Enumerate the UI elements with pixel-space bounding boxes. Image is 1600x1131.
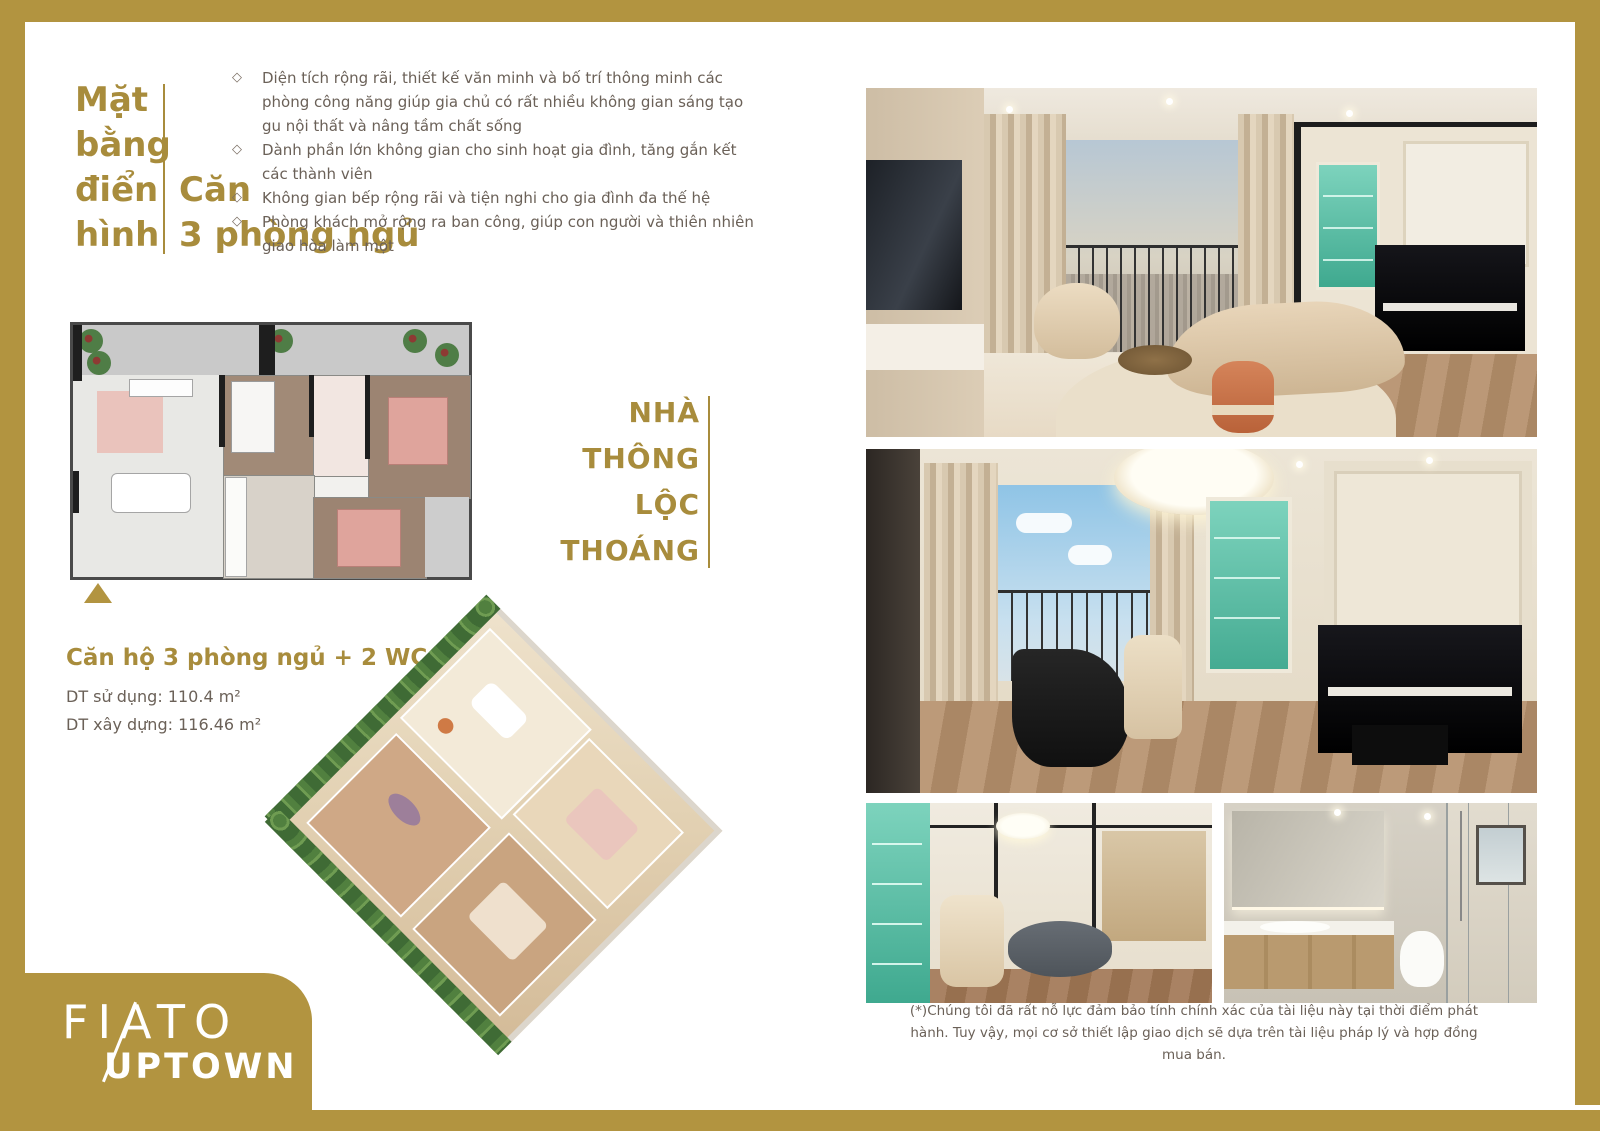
diamond-bullet-icon: ◇ — [232, 210, 262, 234]
diamond-bullet-icon: ◇ — [232, 186, 262, 210]
brand-logo: FIATO UPTOWN — [0, 973, 312, 1131]
feature-text: Không gian bếp rộng rãi và tiện nghi cho… — [262, 186, 710, 210]
teal-display-shelf — [1210, 501, 1288, 669]
shelf-line — [1214, 577, 1280, 579]
plan-entrance-marker — [84, 583, 112, 603]
piano-keys — [1383, 303, 1517, 311]
ceiling-light — [1006, 106, 1013, 113]
tagline-line: LỘC — [540, 482, 700, 528]
plan-wall — [219, 375, 225, 447]
display-cabinet — [1102, 831, 1206, 941]
television — [866, 160, 962, 310]
plan-plant — [87, 351, 111, 375]
shelf-line — [872, 843, 922, 845]
wall-moulding-panel — [1334, 471, 1522, 629]
plan-rug — [97, 391, 163, 453]
diamond-bullet-icon: ◇ — [232, 138, 262, 162]
plan-sofa — [129, 379, 193, 397]
tagline-line: NHÀ — [540, 390, 700, 436]
shelf-line — [1323, 259, 1373, 261]
feature-item: ◇ Diện tích rộng rãi, thiết kế văn minh … — [232, 66, 756, 138]
shelf-line — [872, 883, 922, 885]
tagline-divider — [708, 396, 710, 568]
plan-kitchen-counter — [225, 477, 247, 577]
floor-plan-3d — [255, 600, 735, 1070]
plan-wall — [259, 325, 275, 375]
pouf-band — [1212, 405, 1274, 415]
plan-bed — [337, 509, 401, 567]
sink — [1260, 921, 1330, 933]
title-divider — [163, 84, 165, 254]
piano-keys — [1328, 687, 1512, 696]
study-room-photo — [866, 449, 1537, 793]
disclaimer-text: (*)Chúng tôi đã rất nỗ lực đảm bảo tính … — [898, 1000, 1490, 1066]
vanity-mirror — [1232, 811, 1384, 910]
plan-plant — [79, 329, 103, 353]
office-chair — [1124, 635, 1182, 739]
plan-plant — [403, 329, 427, 353]
shower-bar — [1460, 811, 1462, 921]
title-line: hình — [75, 213, 147, 258]
title-line: điển — [75, 168, 147, 213]
plan-bathroom — [313, 375, 370, 477]
plan-bed — [388, 397, 448, 465]
page-title-left-column: Mặt bằng điển hình — [75, 78, 147, 258]
shelf-line — [1214, 537, 1280, 539]
title-line: Mặt — [75, 78, 147, 123]
crystal-chandelier — [996, 813, 1050, 839]
shelf-line — [1323, 195, 1373, 197]
feature-text: Phòng khách mở rộng ra ban công, giúp co… — [262, 210, 756, 258]
coffee-table — [1118, 345, 1192, 375]
cloud — [1068, 545, 1112, 565]
teal-display-shelf — [1319, 165, 1377, 287]
brand-name-uptown: UPTOWN — [104, 1047, 298, 1087]
teal-display-shelf — [866, 803, 930, 1003]
shelf-line — [872, 923, 922, 925]
plan-dining-table — [111, 473, 191, 513]
shelf-line — [1214, 617, 1280, 619]
shelf-line — [872, 963, 922, 965]
ceiling-light — [1426, 457, 1433, 464]
feature-text: Diện tích rộng rãi, thiết kế văn minh và… — [262, 66, 756, 138]
orange-pouf — [1212, 361, 1274, 433]
oval-desk — [1008, 921, 1112, 977]
ceiling-light — [1296, 461, 1303, 468]
tagline: NHÀ THÔNG LỘC THOÁNG — [540, 390, 700, 574]
glass-line — [1468, 803, 1469, 1003]
feature-text: Dành phần lớn không gian cho sinh hoạt g… — [262, 138, 756, 186]
ceiling-light — [1424, 813, 1431, 820]
bathroom-photo — [1224, 803, 1537, 1003]
ceiling-light — [1334, 809, 1341, 816]
plan-bed — [231, 381, 275, 453]
office-photo — [866, 803, 1212, 1003]
frame-left-bar — [0, 0, 25, 980]
piano-bench — [1352, 725, 1448, 765]
diamond-bullet-icon: ◇ — [232, 66, 262, 90]
plan-wall — [365, 375, 370, 459]
tagline-line: THÔNG — [540, 436, 700, 482]
plan-plant — [435, 343, 459, 367]
dark-door-panel — [866, 449, 920, 793]
brochure-page: Mặt bằng điển hình Căn 3 phòng ngủ ◇ Diệ… — [0, 0, 1600, 1131]
plan-wall — [73, 471, 79, 513]
feature-item: ◇ Phòng khách mở rộng ra ban công, giúp … — [232, 210, 756, 258]
ceiling-light — [1346, 110, 1353, 117]
frame-right-bar — [1575, 0, 1600, 1105]
cloud — [1016, 513, 1072, 533]
brand-name-fiato: FIATO — [62, 995, 239, 1049]
plan-wall — [309, 375, 314, 437]
armchair — [1034, 283, 1120, 359]
ceiling-light — [1166, 98, 1173, 105]
floor-plan-3d-body — [267, 597, 722, 1052]
plan-side-balcony — [425, 497, 469, 577]
floor-plan-2d — [70, 322, 472, 580]
title-line: bằng — [75, 123, 147, 168]
feature-item: ◇ Dành phần lớn không gian cho sinh hoạt… — [232, 138, 756, 186]
wood-vanity-cabinet — [1224, 935, 1394, 989]
frame-top-bar — [0, 0, 1600, 22]
upright-piano — [1375, 245, 1525, 351]
living-room-photo — [866, 88, 1537, 437]
toilet — [1400, 931, 1444, 987]
bathroom-window — [1476, 825, 1526, 885]
feature-item: ◇ Không gian bếp rộng rãi và tiện nghi c… — [232, 186, 756, 210]
shelf-line — [1323, 227, 1373, 229]
office-chair — [940, 895, 1004, 987]
tagline-line: THOÁNG — [540, 528, 700, 574]
plan-wall — [73, 325, 82, 381]
feature-list: ◇ Diện tích rộng rãi, thiết kế văn minh … — [232, 66, 756, 258]
glass-partition-frame — [930, 825, 1212, 828]
